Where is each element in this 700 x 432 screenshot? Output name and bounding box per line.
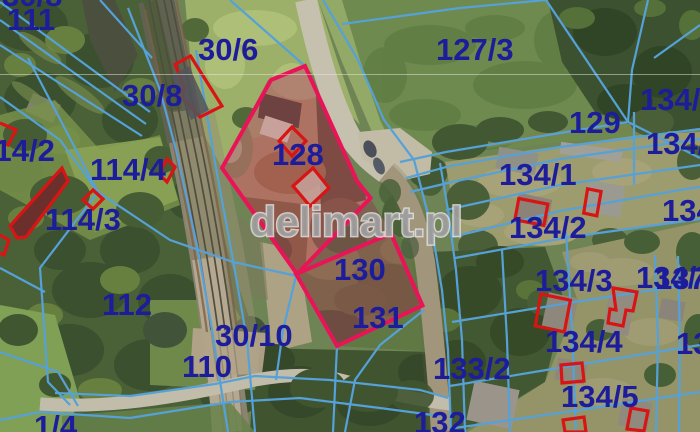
svg-text:134/4: 134/4	[545, 324, 623, 359]
svg-text:134/7: 134/7	[640, 82, 700, 117]
svg-text:134/2: 134/2	[646, 126, 700, 161]
svg-text:128: 128	[272, 137, 324, 172]
svg-text:132: 132	[414, 405, 466, 432]
svg-text:30/8: 30/8	[122, 78, 182, 113]
svg-text:delimart.pl: delimart.pl	[250, 198, 462, 245]
svg-text:134/1: 134/1	[499, 157, 577, 192]
svg-text:129: 129	[569, 105, 621, 140]
svg-text:30/6: 30/6	[198, 32, 258, 67]
svg-text:112: 112	[102, 287, 152, 322]
svg-text:1/4: 1/4	[34, 409, 78, 432]
svg-text:110: 110	[182, 349, 232, 384]
svg-text:137: 137	[655, 261, 700, 296]
svg-text:30/10: 30/10	[215, 318, 293, 353]
svg-text:133/2: 133/2	[433, 351, 511, 386]
svg-text:111: 111	[7, 2, 55, 37]
svg-text:131: 131	[352, 300, 404, 335]
svg-text:114/4: 114/4	[90, 152, 167, 187]
svg-text:114/2: 114/2	[0, 133, 55, 168]
svg-text:134/5: 134/5	[561, 379, 639, 414]
svg-text:130: 130	[334, 252, 386, 287]
svg-text:136: 136	[676, 326, 700, 361]
svg-text:127/3: 127/3	[436, 32, 514, 67]
svg-text:134: 134	[662, 193, 700, 228]
svg-text:134/2: 134/2	[509, 210, 587, 245]
svg-text:114/3: 114/3	[45, 202, 121, 237]
svg-text:134/3: 134/3	[535, 263, 613, 298]
